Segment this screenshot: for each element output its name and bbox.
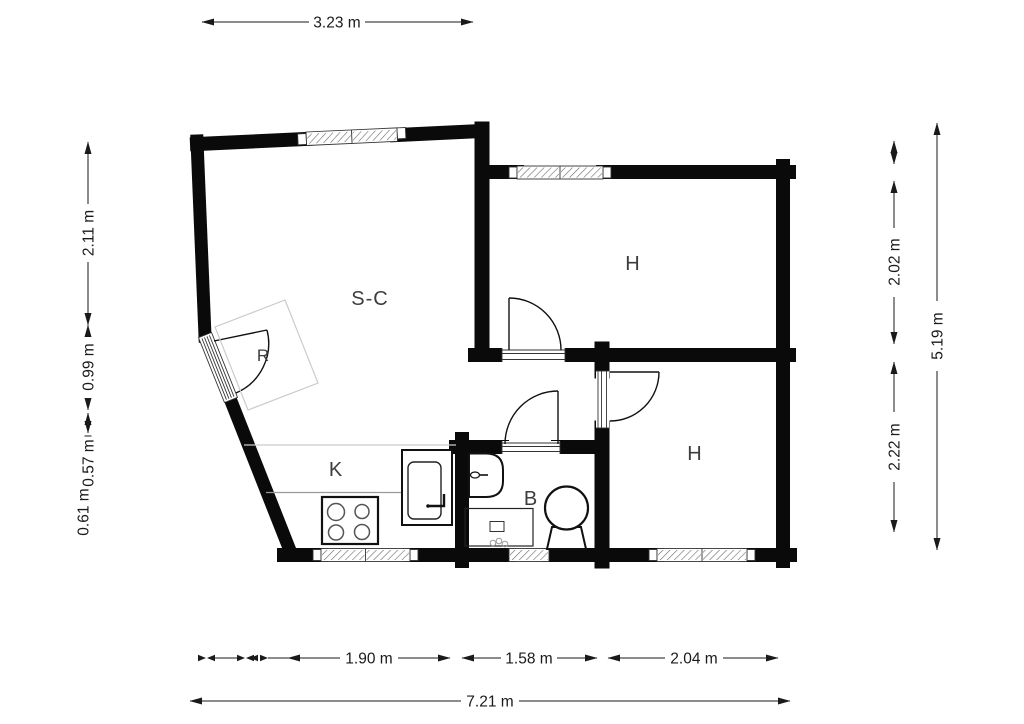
- window-kitchen-bottom: [313, 549, 418, 562]
- room-label-entry: R: [257, 346, 269, 365]
- door-bathroom: [505, 391, 558, 444]
- dimension-label: 3.23 m: [313, 15, 360, 32]
- dimension-bottom-total: 7.21 m: [190, 694, 790, 711]
- window-living-top: [298, 127, 407, 145]
- room-label-living: S-C: [351, 288, 388, 310]
- door-bedroom-top: [509, 298, 561, 350]
- dimension-left-bottom: 0.61 m: [76, 488, 93, 535]
- window-bathroom-bottom: [509, 549, 549, 562]
- dimension-bottom-bedroom: 2.04 m: [608, 651, 778, 668]
- room-label-kitchen: K: [329, 459, 343, 481]
- window-glazing: [367, 550, 410, 560]
- window-divider: [351, 130, 352, 143]
- dimension-label: 1.90 m: [345, 651, 392, 668]
- room-label-bedroom-bottom: H: [687, 443, 702, 465]
- dimension-label: 2.04 m: [670, 651, 717, 668]
- dimension-top-width: 3.23 m: [202, 15, 473, 32]
- dimension-label: 0.57 m: [81, 439, 98, 486]
- window-sill-block: [397, 127, 406, 138]
- micro-dimension-arrows: [198, 655, 288, 662]
- floorplan-drawing: S-C H H K B R 3.23 m 2.11 m 0.99 m 0.57 …: [0, 0, 1024, 724]
- floorplan-canvas: S-C H H K B R 3.23 m 2.11 m 0.99 m 0.57 …: [0, 0, 1024, 724]
- window-glazing: [353, 130, 397, 142]
- dimension-label: 2.22 m: [887, 423, 904, 470]
- window-sill-block: [747, 550, 755, 561]
- dimension-label: 5.19 m: [930, 312, 947, 359]
- dimension-bottom-kitchen: 1.90 m: [288, 651, 450, 668]
- sink-basin: [408, 462, 441, 519]
- dimension-label: 0.99 m: [81, 343, 98, 390]
- window-glazing: [703, 550, 746, 560]
- window-sill-block: [313, 550, 321, 561]
- wall-top-right-segment: [397, 131, 482, 135]
- washbasin-icon: [469, 454, 503, 498]
- dimension-label: 0.61 m: [76, 488, 93, 535]
- shower-tray: [465, 509, 533, 547]
- window-glazing: [561, 168, 602, 178]
- dimension-bottom-bath: 1.58 m: [462, 651, 597, 668]
- window-glazing: [658, 550, 701, 560]
- dimension-right-room-bottom: 2.22 m: [887, 362, 904, 532]
- wall-left-lower-slanted: [231, 401, 289, 548]
- window-glazing: [322, 550, 365, 560]
- stove-icon: [322, 497, 378, 544]
- room-label-bathroom: B: [524, 488, 538, 510]
- wall-left-upper: [197, 141, 205, 336]
- kitchen-sink-icon: [402, 450, 452, 525]
- window-sill-block: [509, 167, 517, 178]
- dimension-right-room-top: 2.02 m: [887, 181, 904, 344]
- dimension-label: 2.02 m: [887, 238, 904, 285]
- threshold-bathroom-door: [502, 441, 560, 454]
- wall-top-left-segment: [197, 139, 306, 144]
- threshold-bedroom-bottom-door: [596, 371, 609, 428]
- dimension-label: 2.11 m: [81, 210, 98, 256]
- dimension-left-lower: 0.57 m: [81, 413, 98, 487]
- shower-drain-box: [490, 522, 504, 532]
- window-glazing: [307, 132, 351, 144]
- window-sill-block: [410, 550, 418, 561]
- sink-faucet-tip: [426, 504, 430, 508]
- window-glazing: [518, 168, 559, 178]
- dimension-label: 1.58 m: [505, 651, 552, 668]
- room-label-bedroom-top: H: [625, 253, 640, 275]
- window-sill-block: [298, 133, 307, 144]
- window-bedroom-top: [509, 166, 611, 179]
- dimension-left-upper: 2.11 m: [81, 142, 98, 325]
- dimension-right-total: 5.19 m: [930, 123, 947, 550]
- window-sill-block: [649, 550, 657, 561]
- toilet-icon: [545, 487, 588, 550]
- window-bedroom-bottom: [649, 549, 755, 562]
- dimension-left-mid: 0.99 m: [81, 325, 98, 410]
- basin-faucet: [471, 472, 480, 478]
- window-glazing: [510, 550, 548, 560]
- dimension-label: 7.21 m: [466, 694, 513, 711]
- window-sill-block: [603, 167, 611, 178]
- door-bedroom-bottom: [610, 372, 659, 421]
- threshold-bedroom-top-door: [502, 348, 565, 362]
